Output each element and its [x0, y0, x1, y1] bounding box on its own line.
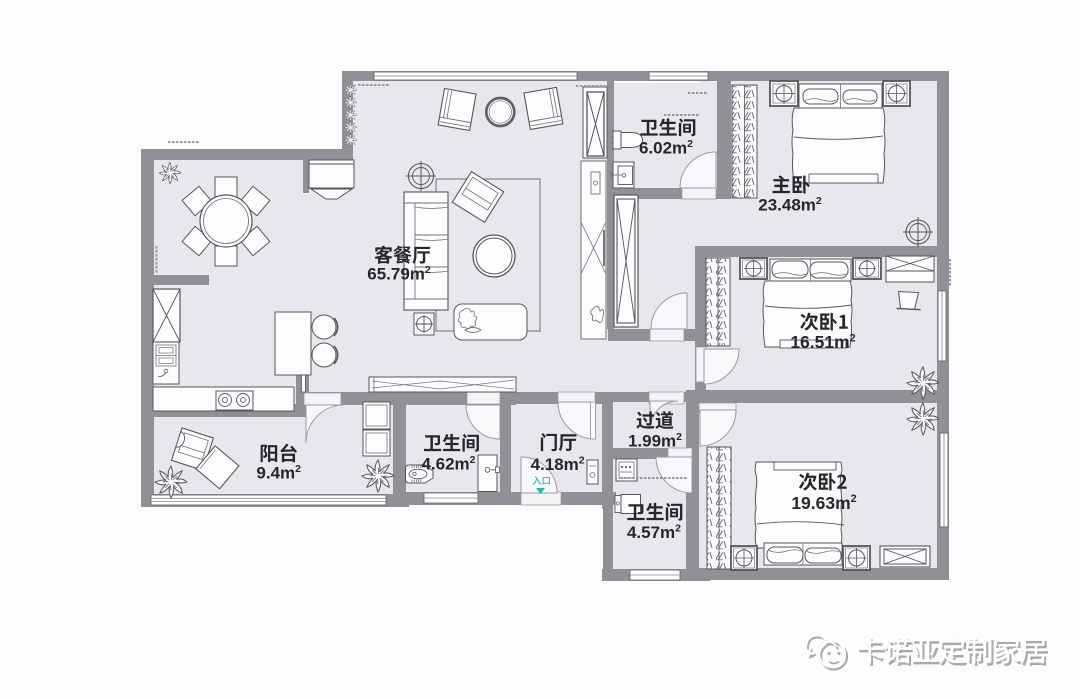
svg-text:9.4m2: 9.4m2 [256, 463, 301, 483]
svg-text:16.51m2: 16.51m2 [790, 332, 855, 352]
svg-text:4.18m2: 4.18m2 [531, 455, 585, 475]
svg-text:4.57m2: 4.57m2 [627, 523, 681, 543]
svg-text:4.62m2: 4.62m2 [421, 454, 475, 474]
svg-text:19.63m2: 19.63m2 [791, 493, 856, 513]
svg-text:65.79m2: 65.79m2 [367, 264, 431, 284]
svg-text:1.99m2: 1.99m2 [628, 431, 682, 451]
svg-text:6.02m2: 6.02m2 [639, 138, 693, 158]
svg-text:23.48m2: 23.48m2 [758, 195, 822, 215]
